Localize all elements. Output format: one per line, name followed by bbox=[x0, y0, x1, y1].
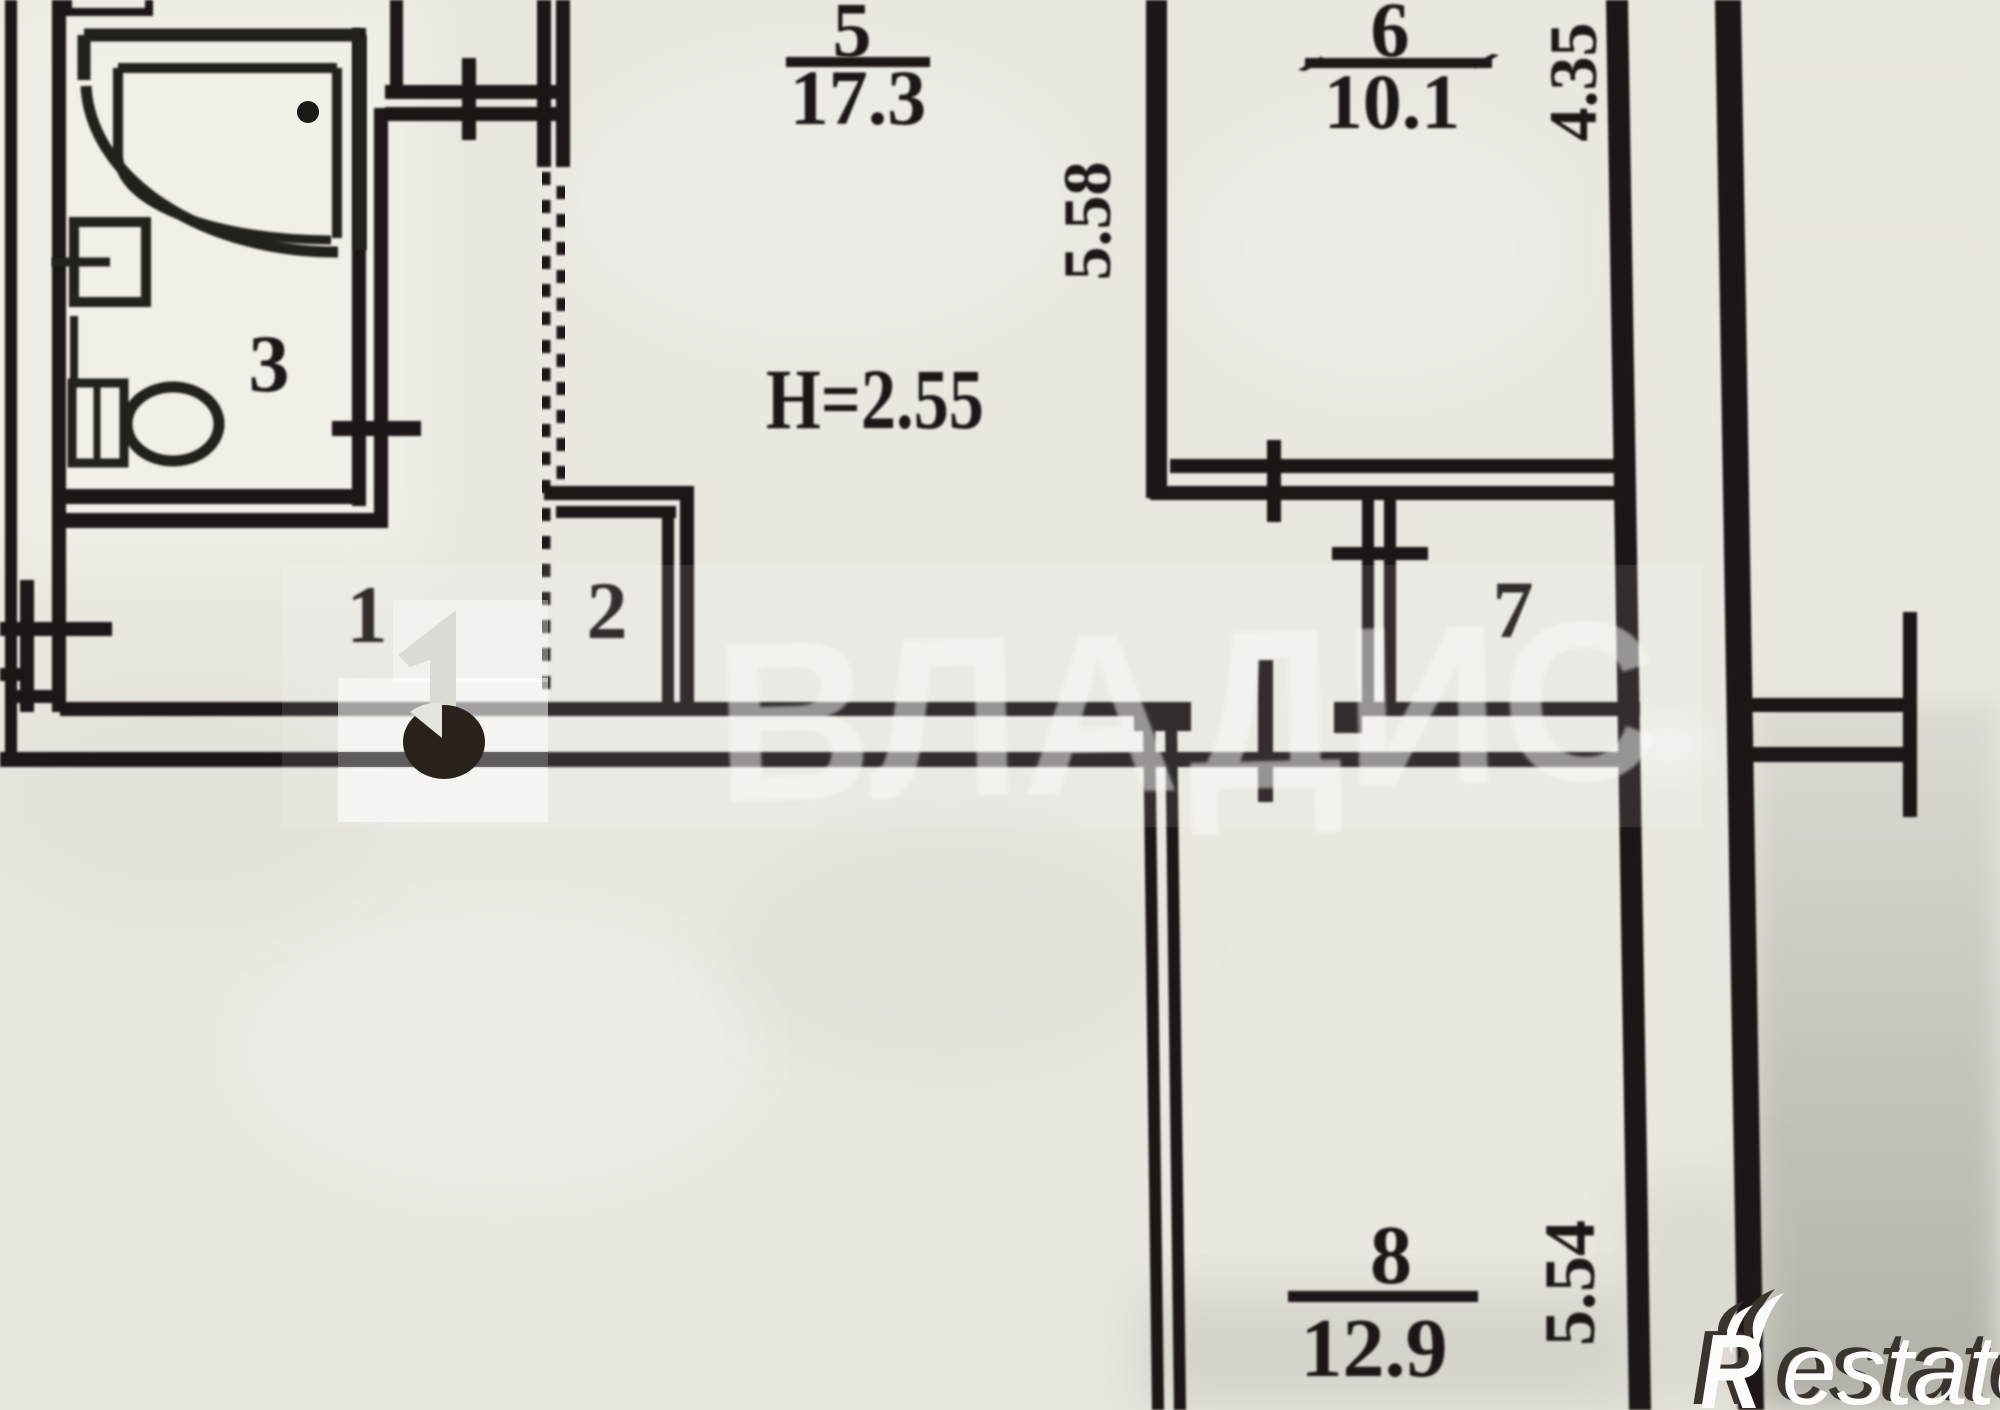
svg-text:10.1: 10.1 bbox=[1324, 58, 1461, 145]
svg-text:estate: estate bbox=[1782, 1315, 2000, 1410]
svg-text:5.58: 5.58 bbox=[1049, 162, 1125, 281]
svg-text:17.3: 17.3 bbox=[790, 54, 927, 141]
svg-text:4.35: 4.35 bbox=[1535, 23, 1611, 142]
svg-text:Н=2.55: Н=2.55 bbox=[766, 351, 984, 447]
svg-text:3: 3 bbox=[249, 318, 290, 409]
svg-text:ВЛАДИС: ВЛАДИС bbox=[711, 574, 1662, 851]
svg-text:12.9: 12.9 bbox=[1301, 1302, 1448, 1395]
svg-text:8: 8 bbox=[1370, 1209, 1412, 1302]
svg-text:5.54: 5.54 bbox=[1530, 1220, 1610, 1346]
